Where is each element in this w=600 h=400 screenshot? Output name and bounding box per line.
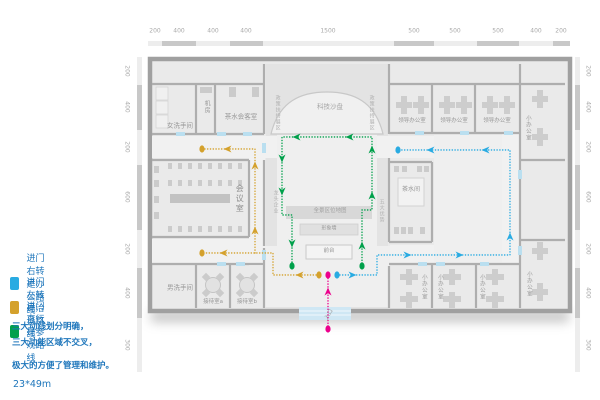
label-reception-room-b: 接待室b (237, 300, 257, 306)
dim-top-8: 400 (530, 28, 541, 35)
label-leader-office-2: 领导办公室 (440, 119, 468, 125)
label-meeting-room: 会议室 (235, 184, 243, 214)
label-tea-room: 茶水间 (402, 187, 420, 193)
dim-top-1: 400 (173, 28, 184, 35)
label-leader-office-1: 领导办公室 (398, 119, 426, 125)
dim-top-5: 500 (408, 28, 419, 35)
label-small-office-b3: 小办公室 (478, 274, 484, 300)
dim-right-2: 200 (585, 141, 592, 152)
dim-right-0: 200 (585, 65, 592, 76)
label-small-office-b2: 小办公室 (436, 274, 442, 300)
dim-left-5: 400 (124, 287, 131, 298)
label-policy-exhibit-left: 政策扶持展区 (274, 95, 279, 131)
label-leader-office-3: 领导办公室 (483, 119, 511, 125)
label-policy-exhibit-right: 政策扶持展区 (368, 95, 373, 131)
dim-right-1: 400 (585, 101, 592, 112)
dim-left-0: 200 (124, 65, 131, 76)
dim-left-1: 400 (124, 101, 131, 112)
dim-left-6: 300 (124, 339, 131, 350)
dim-top-2: 400 (207, 28, 218, 35)
floor-plan-page: 200 400 400 400 1500 500 500 500 400 200… (0, 0, 600, 400)
label-reception-room-a: 接待室a (203, 300, 223, 306)
dim-top-3: 400 (240, 28, 251, 35)
note-line-2: 三大功能区域不交叉， (12, 336, 97, 348)
label-small-office-b1: 小办公室 (420, 274, 426, 300)
size-note: 23*49m (13, 379, 51, 390)
ruler-right (575, 57, 580, 372)
dim-top-6: 500 (449, 28, 460, 35)
ruler-left (137, 57, 142, 372)
label-five-advantages: 五大优势 (378, 199, 383, 223)
label-leading-enterprise: 龙头企业 (272, 190, 277, 214)
label-men-restroom: 男洗手间 (167, 285, 193, 292)
label-small-office-top-right: 小办公室 (524, 115, 530, 141)
dim-left-3: 600 (124, 191, 131, 202)
dim-left-4: 200 (124, 243, 131, 254)
dim-right-6: 300 (585, 339, 592, 350)
dim-top-7: 500 (492, 28, 503, 35)
label-women-restroom: 女洗手间 (167, 123, 193, 130)
dim-right-4: 200 (585, 243, 592, 254)
label-image-wall: 形象墙 (321, 226, 336, 231)
dim-top-4: 1500 (320, 28, 335, 35)
label-tea-reception-room: 茶水会客室 (225, 114, 258, 121)
dim-left-2: 200 (124, 141, 131, 152)
dim-top-0: 200 (149, 28, 160, 35)
dim-top-9: 200 (555, 28, 566, 35)
label-panorama-map: 全景区位地图 (313, 209, 346, 215)
note-line-1: 三大动线划分明确， (12, 320, 89, 332)
label-tech-sand-table: 科技沙盘 (317, 104, 343, 111)
dim-right-5: 400 (585, 287, 592, 298)
note-line-3: 极大的方便了管理和维护。 (12, 359, 114, 371)
dim-right-3: 600 (585, 191, 592, 202)
label-front-desk: 前台 (323, 249, 334, 255)
ruler-top (148, 41, 570, 46)
meeting-table (170, 194, 230, 203)
label-machine-room: 机房 (203, 100, 209, 114)
label-small-office-b4: 小办公室 (525, 271, 531, 297)
